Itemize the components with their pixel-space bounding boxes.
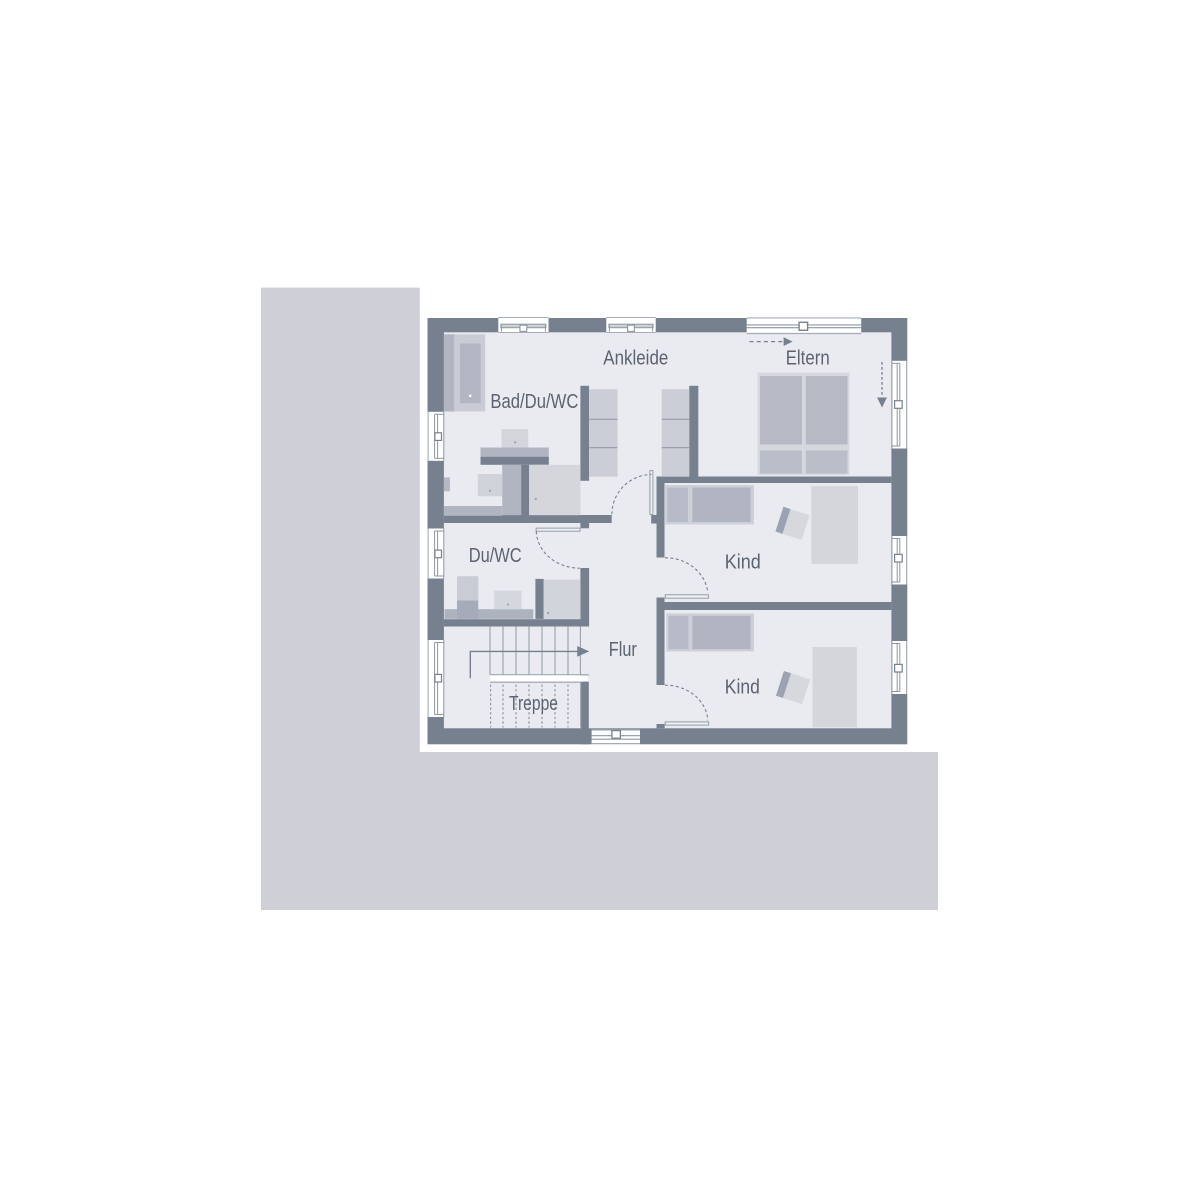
svg-text:Du/WC: Du/WC xyxy=(469,544,522,567)
svg-text:Flur: Flur xyxy=(609,638,637,661)
svg-text:Bad/Du/WC: Bad/Du/WC xyxy=(490,390,578,413)
svg-text:Eltern: Eltern xyxy=(786,347,830,370)
svg-text:Treppe: Treppe xyxy=(509,692,558,715)
svg-text:Ankleide: Ankleide xyxy=(603,347,668,370)
svg-text:Kind: Kind xyxy=(725,551,761,574)
svg-text:Kind: Kind xyxy=(725,675,760,698)
